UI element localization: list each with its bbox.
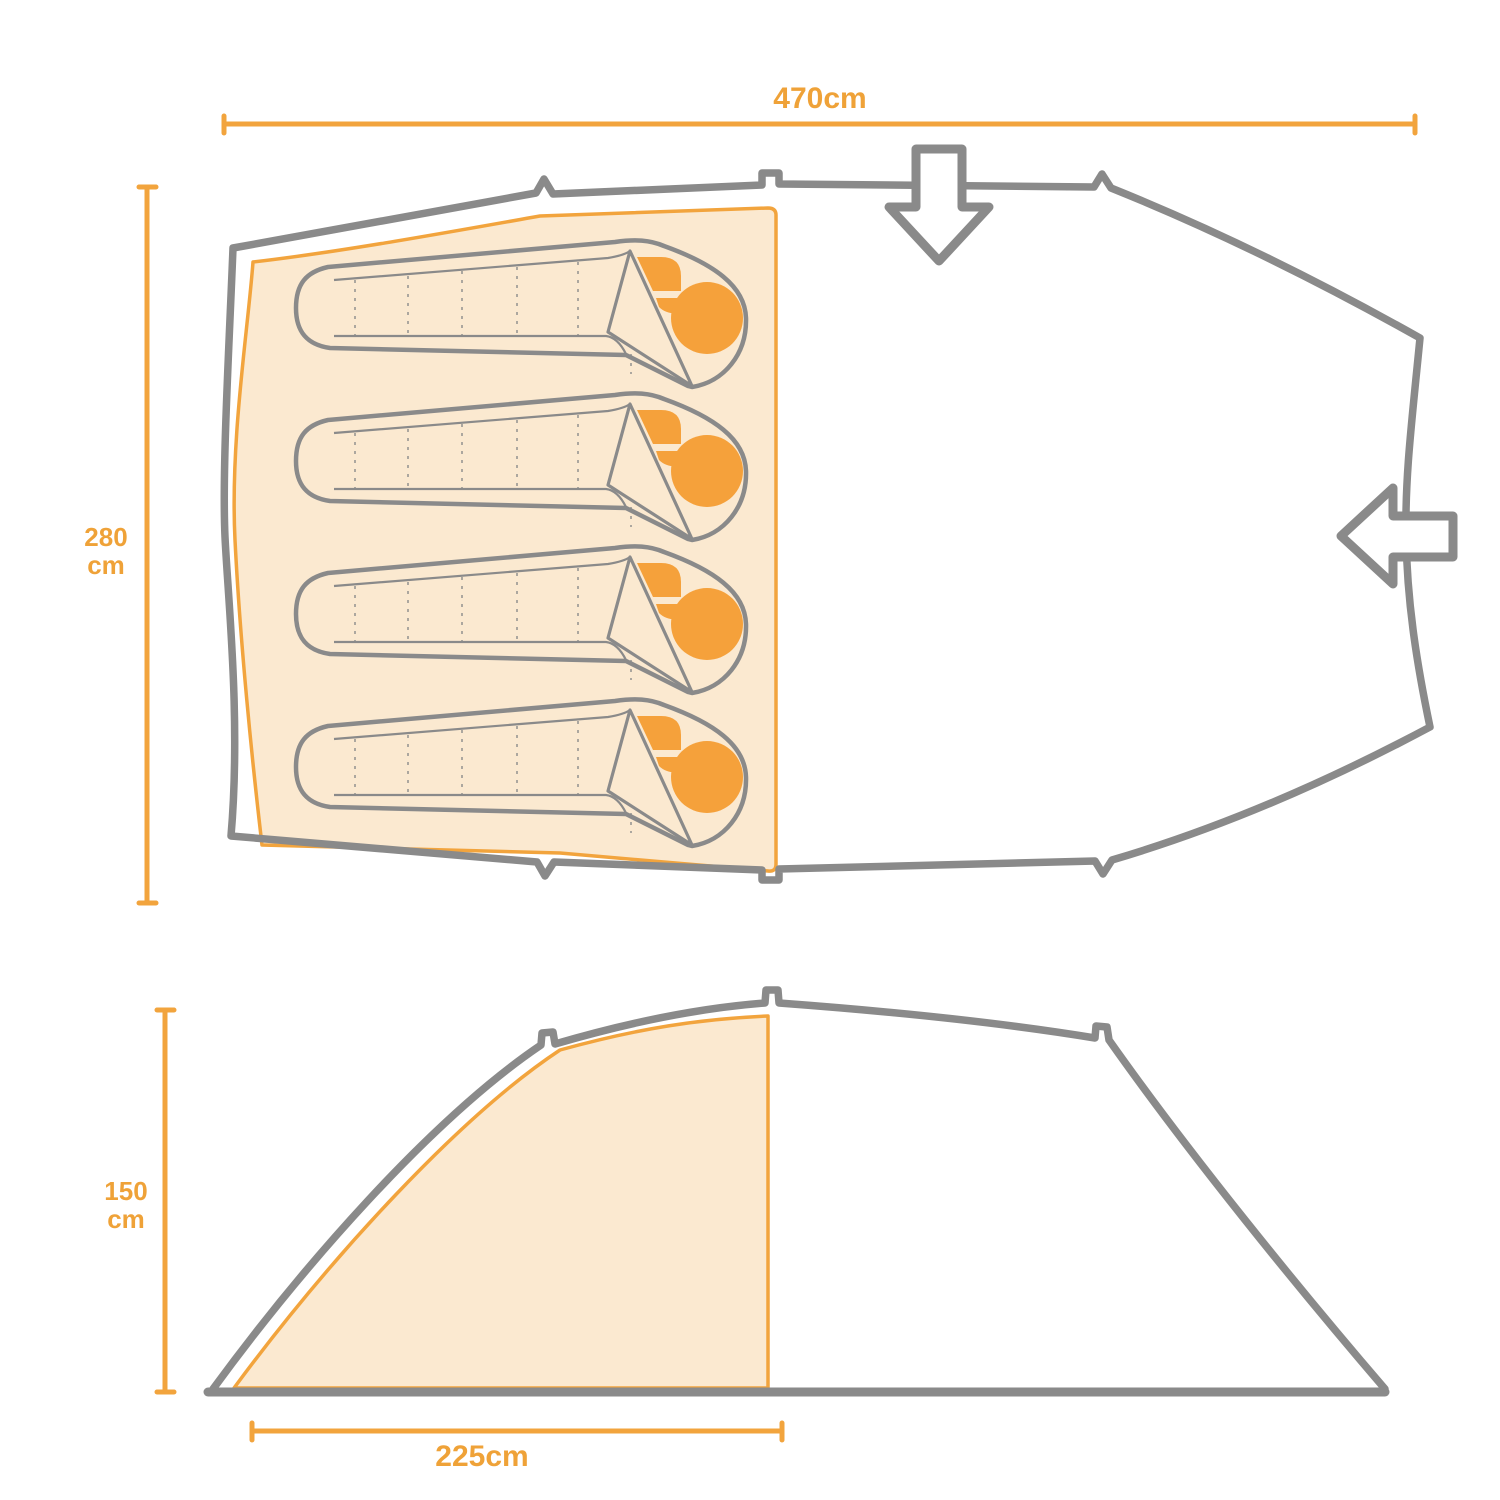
side-view — [208, 990, 1385, 1392]
door-arrow-down-icon — [889, 149, 989, 261]
dimension-width-top — [224, 116, 1415, 133]
dimension-sleep-depth — [252, 1423, 782, 1440]
dimension-depth-left — [139, 187, 156, 903]
label-sleep-depth-225cm: 225cm — [435, 1440, 528, 1473]
label-width-470cm: 470cm — [773, 82, 866, 115]
tent-diagram: 470cm 280 cm 150 cm 225cm — [0, 0, 1500, 1500]
label-height-unit: cm — [107, 1204, 145, 1234]
tent-diagram-canvas: 470cm 280 cm 150 cm 225cm — [0, 0, 1500, 1500]
label-height-150: 150 — [104, 1176, 147, 1206]
label-depth-280: 280 — [84, 522, 127, 552]
top-view — [224, 149, 1453, 880]
door-arrow-left-icon — [1341, 488, 1453, 584]
dimension-height-side — [157, 1010, 174, 1392]
label-depth-unit: cm — [87, 550, 125, 580]
